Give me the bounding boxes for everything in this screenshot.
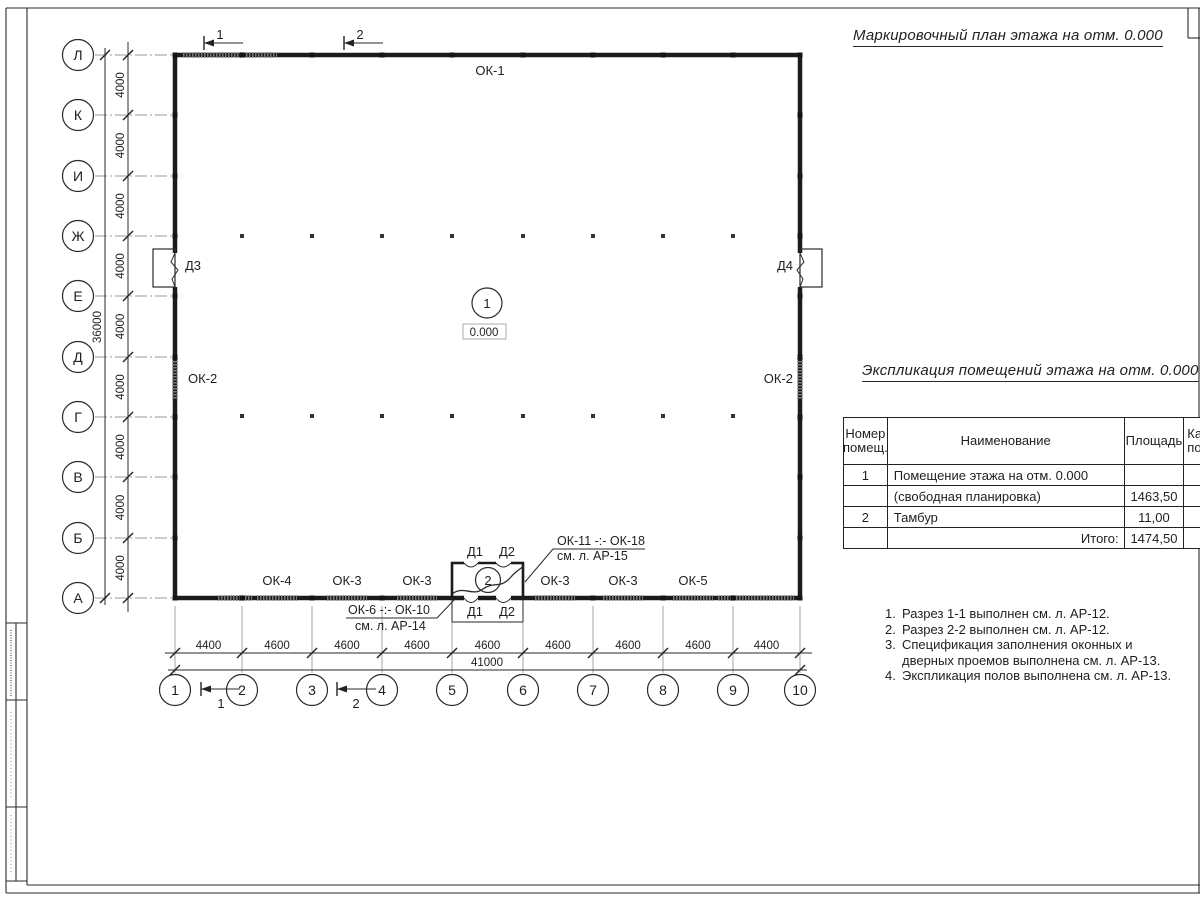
wall-pier bbox=[173, 53, 178, 58]
wall-pier bbox=[591, 53, 596, 58]
leader-bottom-line1: ОК-6 -:- ОК-10 bbox=[348, 603, 430, 617]
section-1-label-top: 1 bbox=[216, 27, 223, 42]
dim-span: 4600 bbox=[615, 640, 641, 652]
drawing-sheet: ЛКИЖЕДГВБА12345678910 360004000400040004… bbox=[0, 0, 1200, 900]
wall-pier bbox=[173, 536, 178, 541]
header-text: Ка bbox=[1187, 427, 1200, 442]
table-header-area: Площадь bbox=[1125, 418, 1185, 464]
door-label-d3: Д3 bbox=[185, 258, 201, 273]
wall-pier bbox=[173, 174, 178, 179]
note-text: Спецификация заполнения оконных и дверны… bbox=[902, 637, 1180, 668]
dim-span: 4600 bbox=[545, 640, 571, 652]
drawing-title: Маркировочный план этажа на отм. 0.000 bbox=[853, 27, 1163, 44]
dim-4000: 4000 bbox=[115, 555, 127, 581]
table-header-row: Номер помещ. Наименование Площадь Ка по bbox=[844, 418, 1200, 465]
window-label-ok2-right: ОК-2 bbox=[764, 371, 793, 386]
table-cell-c3: 1474,50 bbox=[1125, 528, 1185, 548]
note-number: 3. bbox=[885, 637, 902, 668]
table-row: 2Тамбур11,00 bbox=[844, 507, 1200, 528]
wall-pier bbox=[731, 53, 736, 58]
dim-4000: 4000 bbox=[115, 193, 127, 219]
interior-column bbox=[450, 414, 454, 418]
dim-span: 4600 bbox=[404, 640, 430, 652]
note-item: 3.Спецификация заполнения оконных и двер… bbox=[885, 637, 1180, 668]
section-2-label-bottom: 2 bbox=[352, 696, 359, 711]
wall-pier bbox=[380, 53, 385, 58]
axis-col-number: 8 bbox=[659, 682, 667, 698]
note-number: 4. bbox=[885, 668, 902, 684]
window-label: ОК-3 bbox=[608, 573, 637, 588]
table-cell-c4 bbox=[1184, 465, 1200, 485]
note-item: 4.Экспликация полов выполнена см. л. АР-… bbox=[885, 668, 1180, 684]
window-label: ОК-4 bbox=[262, 573, 291, 588]
section-1-label-bottom: 1 bbox=[217, 696, 224, 711]
header-text: помещ. bbox=[844, 441, 888, 456]
section-2-label-top: 2 bbox=[356, 27, 363, 42]
dim-4000: 4000 bbox=[115, 374, 127, 400]
table-cell-c4 bbox=[1184, 528, 1200, 548]
axis-row-letter: А bbox=[73, 590, 83, 606]
interior-column bbox=[731, 234, 735, 238]
table-cell-c3: 11,00 bbox=[1125, 507, 1185, 527]
interior-column bbox=[240, 234, 244, 238]
schedule-title: Экспликация помещений этажа на отм. 0.00… bbox=[862, 362, 1199, 379]
table-row: (свободная планировка)1463,50 bbox=[844, 486, 1200, 507]
wall-pier bbox=[173, 294, 178, 299]
leader-top-line1: ОК-11 -:- ОК-18 bbox=[557, 534, 645, 548]
wall-pier bbox=[173, 355, 178, 360]
dim-span: 4600 bbox=[475, 640, 501, 652]
door-d4-vestibule bbox=[800, 249, 822, 287]
axis-col-number: 7 bbox=[589, 682, 597, 698]
wall-pier bbox=[173, 475, 178, 480]
table-cell-c1 bbox=[844, 528, 888, 548]
notes-list: 1.Разрез 1-1 выполнен см. л. АР-12.2.Раз… bbox=[885, 606, 1180, 684]
drawing-title-text: Маркировочный план этажа на отм. 0.000 bbox=[853, 27, 1163, 47]
dim-4000: 4000 bbox=[115, 314, 127, 340]
wall-pier bbox=[798, 536, 803, 541]
dim-span: 4400 bbox=[754, 640, 780, 652]
note-number: 1. bbox=[885, 606, 902, 622]
window-label: ОК-3 bbox=[332, 573, 361, 588]
axis-col-number: 3 bbox=[308, 682, 316, 698]
table-cell-c3: 1463,50 bbox=[1125, 486, 1185, 506]
dim-span: 4600 bbox=[334, 640, 360, 652]
axis-row-letter: Б bbox=[73, 530, 82, 546]
axis-row-letter: Е bbox=[73, 288, 82, 304]
table-header-name: Наименование bbox=[888, 418, 1125, 464]
axis-row-letter: Ж bbox=[72, 228, 85, 244]
wall-pier bbox=[591, 596, 596, 601]
interior-column bbox=[450, 234, 454, 238]
wall-pier bbox=[798, 174, 803, 179]
header-text: по bbox=[1187, 441, 1200, 456]
table-cell-c4 bbox=[1184, 486, 1200, 506]
wall-pier bbox=[173, 234, 178, 239]
door-d3-vestibule bbox=[153, 249, 175, 287]
room-1-number: 1 bbox=[483, 296, 490, 311]
dim-span: 4600 bbox=[264, 640, 290, 652]
axis-row-letter: Д bbox=[73, 349, 83, 365]
axis-col-number: 6 bbox=[519, 682, 527, 698]
room-2-number: 2 bbox=[484, 573, 491, 588]
window-label-ok2-left: ОК-2 bbox=[188, 371, 217, 386]
wall-pier bbox=[661, 53, 666, 58]
wall-pier bbox=[173, 596, 178, 601]
dim-4000: 4000 bbox=[115, 72, 127, 98]
table-cell-c4 bbox=[1184, 507, 1200, 527]
wall-pier bbox=[310, 53, 315, 58]
schedule-title-text: Экспликация помещений этажа на отм. 0.00… bbox=[862, 362, 1199, 382]
interior-column bbox=[731, 414, 735, 418]
table-cell-c2: Тамбур bbox=[888, 507, 1125, 527]
wall-pier bbox=[450, 53, 455, 58]
note-item: 1.Разрез 1-1 выполнен см. л. АР-12. bbox=[885, 606, 1180, 622]
wall-pier bbox=[798, 113, 803, 118]
wall-pier bbox=[380, 596, 385, 601]
table-cell-c2: Итого: bbox=[888, 528, 1125, 548]
window-label: ОК-5 bbox=[678, 573, 707, 588]
dim-span: 4400 bbox=[196, 640, 222, 652]
interior-column bbox=[591, 234, 595, 238]
wall-pier bbox=[173, 415, 178, 420]
wall-pier bbox=[310, 596, 315, 601]
note-number: 2. bbox=[885, 622, 902, 638]
axis-row-letter: К bbox=[74, 107, 83, 123]
wall-pier bbox=[798, 234, 803, 239]
interior-column bbox=[591, 414, 595, 418]
dim-total-36000: 36000 bbox=[92, 311, 104, 343]
wall-pier bbox=[661, 596, 666, 601]
wall-pier bbox=[173, 113, 178, 118]
interior-column bbox=[661, 234, 665, 238]
axis-row-letter: Г bbox=[74, 409, 82, 425]
dim-span: 4600 bbox=[685, 640, 711, 652]
axis-col-number: 4 bbox=[378, 682, 386, 698]
section-arrow bbox=[344, 40, 354, 47]
wall-pier bbox=[798, 415, 803, 420]
wall-pier bbox=[798, 475, 803, 480]
header-text: Номер bbox=[845, 427, 885, 442]
leader-top-line2: см. л. АР-15 bbox=[557, 549, 628, 563]
axis-row-letter: Л bbox=[73, 47, 82, 63]
note-text: Экспликация полов выполнена см. л. АР-13… bbox=[902, 668, 1180, 684]
window-label: ОК-3 bbox=[540, 573, 569, 588]
dim-4000: 4000 bbox=[115, 253, 127, 279]
section-arrow bbox=[201, 686, 211, 693]
interior-column bbox=[380, 414, 384, 418]
axis-col-number: 5 bbox=[448, 682, 456, 698]
section-arrow bbox=[337, 686, 347, 693]
interior-column bbox=[310, 414, 314, 418]
table-cell-c1: 1 bbox=[844, 465, 888, 485]
axis-col-number: 10 bbox=[792, 682, 808, 698]
wall-pier bbox=[798, 355, 803, 360]
table-row: Итого:1474,50 bbox=[844, 528, 1200, 548]
table-body: 1Помещение этажа на отм. 0.000(свободная… bbox=[844, 465, 1200, 548]
dim-4000: 4000 bbox=[115, 434, 127, 460]
table-cell-c1 bbox=[844, 486, 888, 506]
interior-column bbox=[240, 414, 244, 418]
dim-4000: 4000 bbox=[115, 133, 127, 159]
interior-column bbox=[521, 414, 525, 418]
header-text: Наименование bbox=[961, 434, 1051, 449]
interior-column bbox=[521, 234, 525, 238]
table-cell-c1: 2 bbox=[844, 507, 888, 527]
note-text: Разрез 2-2 выполнен см. л. АР-12. bbox=[902, 622, 1180, 638]
axis-col-number: 2 bbox=[238, 682, 246, 698]
door-label-d1-top: Д1 bbox=[467, 544, 483, 559]
table-header-number: Номер помещ. bbox=[844, 418, 888, 464]
axis-col-number: 9 bbox=[729, 682, 737, 698]
wall-pier bbox=[521, 53, 526, 58]
interior-column bbox=[310, 234, 314, 238]
interior-column bbox=[380, 234, 384, 238]
door-label-d2-top: Д2 bbox=[499, 544, 515, 559]
table-header-category: Ка по bbox=[1184, 418, 1200, 464]
window-label: ОК-3 bbox=[402, 573, 431, 588]
note-text: Разрез 1-1 выполнен см. л. АР-12. bbox=[902, 606, 1180, 622]
table-row: 1Помещение этажа на отм. 0.000 bbox=[844, 465, 1200, 486]
header-text: Площадь bbox=[1126, 434, 1183, 449]
table-cell-c2: Помещение этажа на отм. 0.000 bbox=[888, 465, 1125, 485]
wall-pier bbox=[798, 294, 803, 299]
dim-4000: 4000 bbox=[115, 495, 127, 521]
wall-pier bbox=[798, 596, 803, 601]
door-label-d1-bottom: Д1 bbox=[467, 604, 483, 619]
door-label-d4: Д4 bbox=[777, 258, 793, 273]
axis-row-letter: В bbox=[73, 469, 82, 485]
window-label-ok1: ОК-1 bbox=[475, 63, 504, 78]
note-item: 2.Разрез 2-2 выполнен см. л. АР-12. bbox=[885, 622, 1180, 638]
door-label-d2-bottom: Д2 bbox=[499, 604, 515, 619]
wall-pier bbox=[731, 596, 736, 601]
plan-labels: ОК-1 ОК-2 ОК-2 Д3 Д4 ОК-4 ОК-3 ОК-3 ОК-3… bbox=[185, 63, 793, 633]
leader-bottom-line2: см. л. АР-14 bbox=[355, 619, 426, 633]
room-schedule-table: Номер помещ. Наименование Площадь Ка по … bbox=[843, 417, 1200, 549]
dim-total-41000: 41000 bbox=[471, 657, 503, 669]
interior-column bbox=[661, 414, 665, 418]
wall-pier bbox=[240, 53, 245, 58]
axis-col-number: 1 bbox=[171, 682, 179, 698]
level-mark: 0.000 bbox=[470, 327, 499, 339]
section-arrow bbox=[204, 40, 214, 47]
table-cell-c2: (свободная планировка) bbox=[888, 486, 1125, 506]
table-cell-c3 bbox=[1125, 465, 1185, 485]
wall-pier bbox=[798, 53, 803, 58]
axis-row-letter: И bbox=[73, 168, 83, 184]
wall-pier bbox=[240, 596, 245, 601]
